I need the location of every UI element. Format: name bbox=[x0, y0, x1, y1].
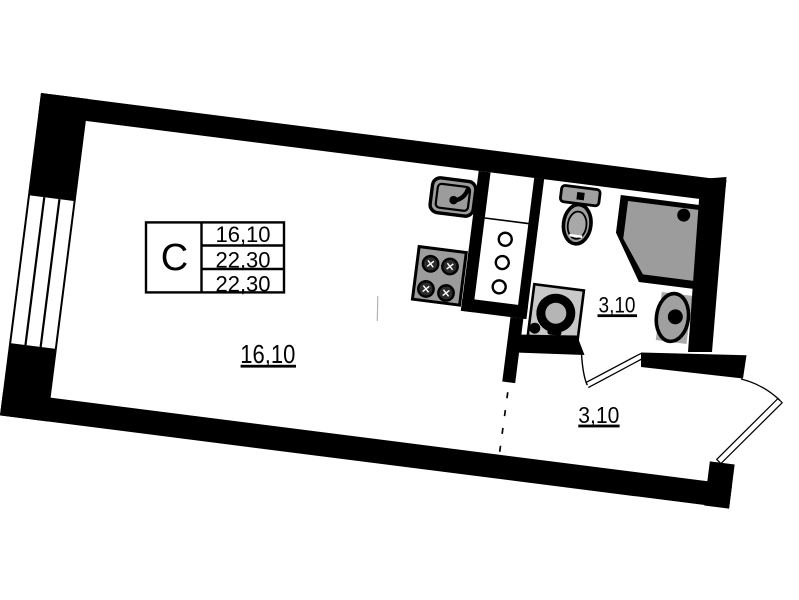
svg-text:3,10: 3,10 bbox=[599, 293, 636, 318]
svg-text:22,30: 22,30 bbox=[215, 272, 270, 297]
svg-text:22,30: 22,30 bbox=[215, 248, 270, 273]
svg-text:С: С bbox=[161, 237, 189, 279]
svg-text:3,10: 3,10 bbox=[578, 402, 619, 428]
svg-text:16,10: 16,10 bbox=[215, 222, 270, 247]
svg-text:16,10: 16,10 bbox=[240, 339, 295, 369]
